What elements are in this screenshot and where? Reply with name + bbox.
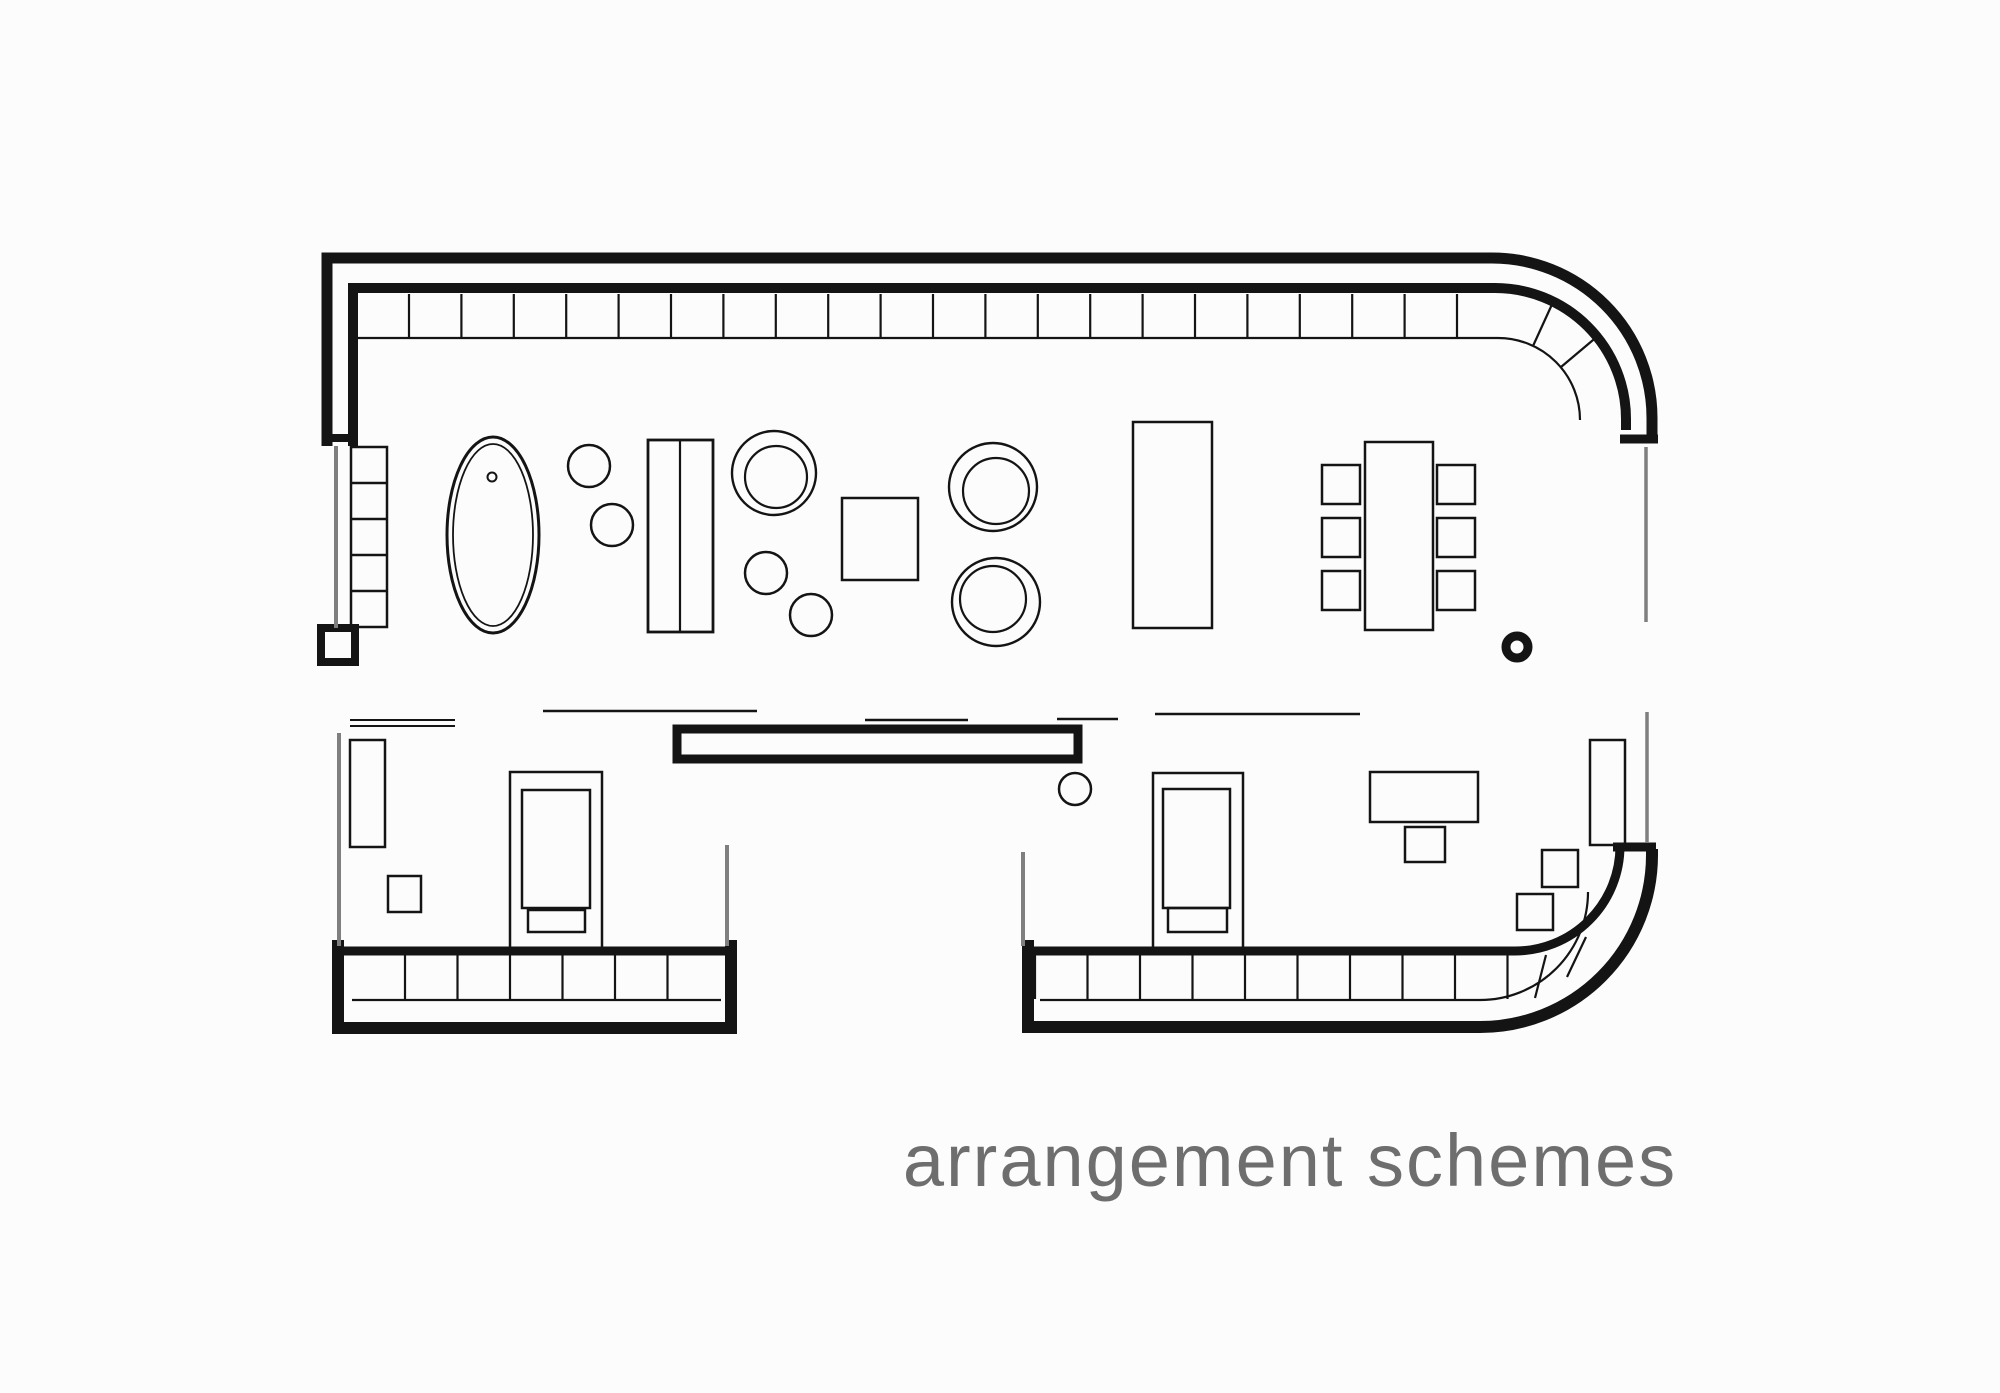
desk	[1370, 772, 1478, 822]
armchair-1-inner	[745, 446, 807, 508]
bathtub-inner	[453, 444, 533, 626]
stool-3	[745, 552, 787, 594]
bathtub-outer	[447, 437, 539, 633]
band-top-sill	[352, 338, 1580, 420]
br-square-upper	[1542, 850, 1578, 887]
wall-top-inner	[353, 288, 1626, 446]
kitchen-island	[1133, 422, 1212, 628]
dining-chair-l3	[1322, 571, 1360, 610]
shelf-unit-left	[351, 447, 387, 627]
stool-4	[790, 594, 832, 636]
wall-bottomright-inner	[1023, 846, 1620, 951]
stool-2	[591, 504, 633, 546]
dining-chair-r3	[1437, 571, 1475, 610]
caption-arrangement-schemes: arrangement schemes	[900, 1118, 1680, 1203]
bathtub-drain	[488, 473, 497, 482]
band-br-curve-tick-1	[1535, 955, 1546, 998]
br-square-lower	[1517, 894, 1553, 930]
coffee-table	[842, 498, 918, 580]
dining-chair-r2	[1437, 518, 1475, 557]
dining-chair-r1	[1437, 465, 1475, 504]
dining-chair-l1	[1322, 465, 1360, 504]
wall-left-end-post	[321, 628, 355, 662]
bed-1-frame	[510, 772, 602, 952]
bed-2-foot	[1168, 908, 1227, 932]
band-top-curve-tick-1	[1533, 300, 1554, 346]
br-cabinet	[1590, 740, 1625, 845]
armchair-3-inner	[960, 566, 1026, 632]
bed-1-mattress	[522, 790, 590, 908]
stool-1	[568, 445, 610, 487]
band-top-curve-tick-2	[1561, 335, 1599, 367]
band-br-curve-tick-2	[1567, 937, 1586, 977]
bed-2-mattress	[1163, 789, 1230, 908]
desk-chair	[1405, 827, 1445, 862]
br-stool	[1059, 773, 1091, 805]
column-ring	[1506, 636, 1528, 658]
band-bottomright-sill	[1040, 892, 1588, 1000]
armchair-2-inner	[963, 458, 1029, 524]
floor-plan-stage: arrangement schemes	[0, 0, 2000, 1393]
dining-chair-l2	[1322, 518, 1360, 557]
bl-side-table	[388, 876, 421, 912]
bl-cabinet	[350, 740, 385, 847]
bed-1-foot	[528, 910, 585, 932]
wall-mid-partition	[677, 729, 1078, 759]
dining-table	[1365, 442, 1433, 630]
